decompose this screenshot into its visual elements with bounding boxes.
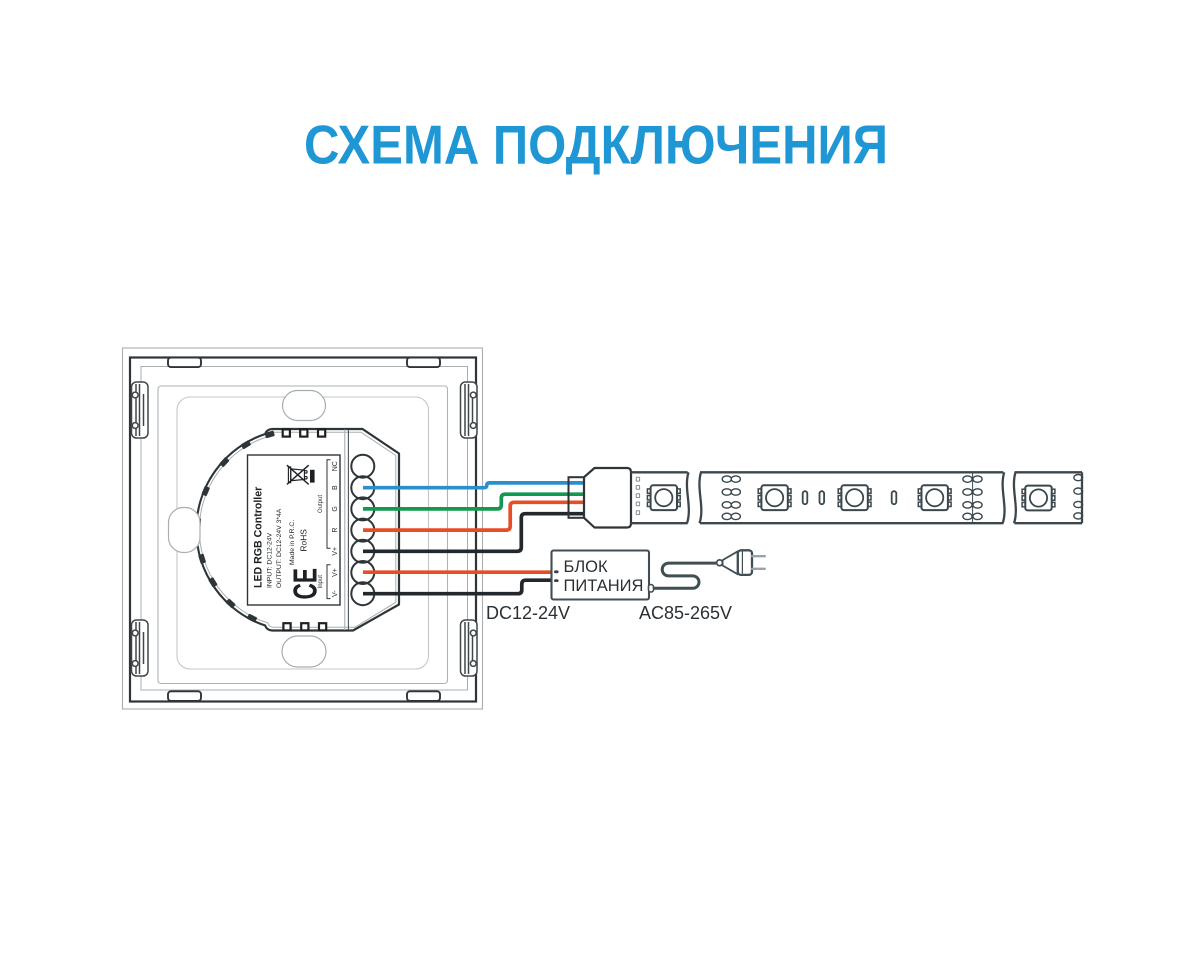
svg-text:ПИТАНИЯ: ПИТАНИЯ [564, 577, 644, 595]
svg-text:B: B [332, 485, 339, 490]
svg-text:Output: Output [318, 495, 324, 513]
svg-text:NC: NC [332, 461, 339, 471]
svg-text:LED RGB Controller: LED RGB Controller [253, 487, 265, 588]
svg-text:INPUT: DC12-24V: INPUT: DC12-24V [267, 532, 274, 588]
svg-text:Made in P.R.C.: Made in P.R.C. [289, 520, 296, 565]
svg-text:Input: Input [318, 575, 324, 589]
svg-text:БЛОК: БЛОК [564, 558, 608, 576]
svg-text:СХЕМА ПОДКЛЮЧЕНИЯ: СХЕМА ПОДКЛЮЧЕНИЯ [304, 114, 888, 176]
svg-text:G: G [332, 506, 339, 511]
svg-text:R: R [332, 528, 339, 533]
svg-text:AC85-265V: AC85-265V [639, 603, 732, 623]
svg-text:V+: V+ [332, 568, 339, 577]
svg-text:V-: V- [332, 590, 339, 597]
svg-text:OUTPUT: DC12-24V 3*4A: OUTPUT: DC12-24V 3*4A [276, 508, 283, 588]
svg-text:DC12-24V: DC12-24V [486, 603, 570, 623]
svg-text:RoHS: RoHS [299, 529, 309, 552]
svg-text:V+: V+ [332, 547, 339, 556]
